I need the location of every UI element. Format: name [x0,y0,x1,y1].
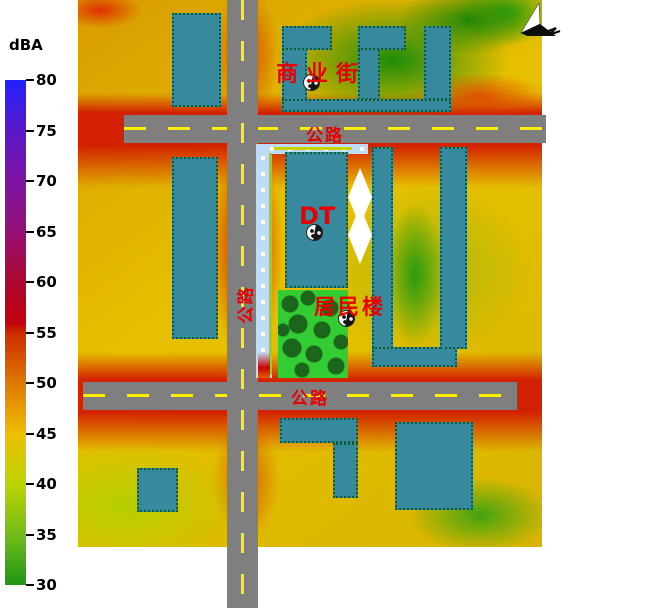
tick-mark [26,231,34,233]
tick-mark [26,79,34,81]
tick-label: 60 [36,273,57,291]
tick-mark [26,180,34,182]
label-road-bottom: 公路 [291,384,329,409]
building-complex-topbar1 [282,26,332,50]
tick-label: 80 [36,71,57,89]
building-u-right-arm [440,147,467,349]
tick-label: 45 [36,425,57,443]
barrier-noise-leak [258,352,270,378]
building-l-leg [333,443,358,498]
legend-color-bar [5,80,26,585]
tick-mark [26,332,34,334]
tick-label: 75 [36,122,57,140]
label-dt-building: DT [299,202,335,230]
tick-label: 70 [36,172,57,190]
tick-mark [26,130,34,132]
building-u-left-arm [372,147,393,367]
tick-label: 65 [36,223,57,241]
barrier-line [269,153,272,375]
label-road-vertical: 公路 [232,286,257,324]
building-bottom-big [395,422,473,510]
tick-label: 40 [36,475,57,493]
label-residential-building: 居民楼 [314,291,386,321]
tick-label: 30 [36,576,57,594]
tick-mark [26,534,34,536]
north-arrow-icon [512,2,566,48]
tick-mark [26,483,34,485]
tick-mark [26,433,34,435]
building-mid-left [172,157,218,339]
building-l-bar [280,418,358,443]
tick-mark [26,584,34,586]
label-road-top: 公路 [306,121,344,146]
tick-label: 35 [36,526,57,544]
building-complex-bottombar [282,99,451,112]
building-top-left [172,13,221,107]
tick-label: 50 [36,374,57,392]
tick-mark [26,281,34,283]
building-bottom-small [137,468,178,512]
building-complex-topbar2 [358,26,406,50]
tick-mark [26,382,34,384]
legend-title: dBA [9,36,43,54]
barrier-line [274,147,352,150]
noise-map-viewport: dBA 80 75 70 65 60 55 50 45 40 35 30 [0,0,663,608]
building-u-bottom [372,347,457,367]
tick-label: 55 [36,324,57,342]
building-complex-column3 [424,26,451,100]
label-commercial-street: 商业街 [276,56,366,88]
